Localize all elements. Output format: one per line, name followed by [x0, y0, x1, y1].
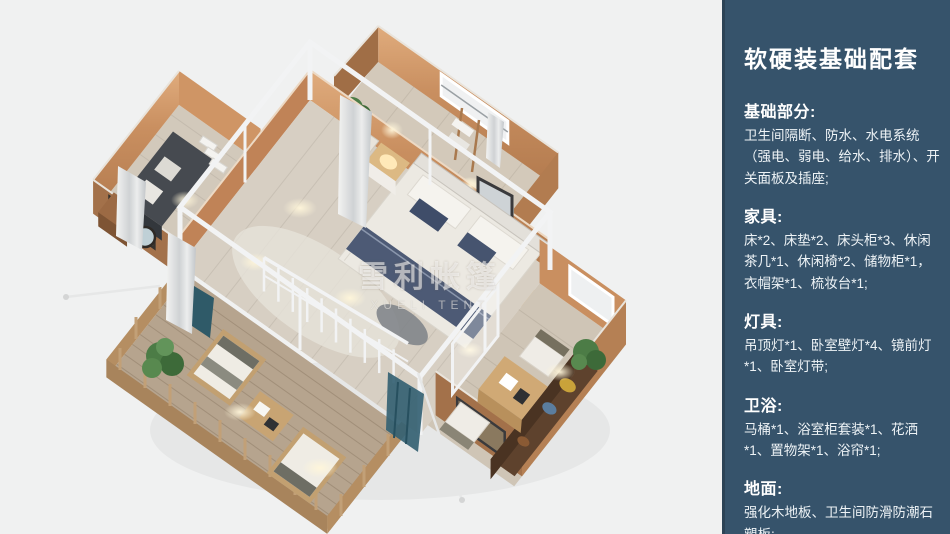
floorplan-render [0, 0, 722, 534]
floor-light-glow [224, 403, 256, 421]
section-basics: 基础部分: 卫生间隔断、防水、水电系统（强电、弱电、给水、排水）、开关面板及插座… [744, 98, 936, 189]
floor-light-glow [283, 198, 317, 218]
section-heading: 家具: [744, 203, 936, 227]
section-heading: 卫浴: [744, 392, 936, 416]
section-body: 强化木地板、卫生间防滑防潮石塑板; [744, 502, 940, 534]
floor-light-glow [334, 288, 366, 308]
section-furniture: 家具: 床*2、床垫*2、床头柜*3、休闲茶几*1、休闲椅*2、储物柜*1，衣帽… [744, 203, 936, 294]
section-body: 吊顶灯*1、卧室壁灯*4、镜前灯*1、卧室灯带; [744, 335, 940, 378]
curtain [166, 232, 196, 334]
section-bathroom: 卫浴: 马桶*1、浴室柜套装*1、花洒*1、置物架*1、浴帘*1; [744, 392, 936, 462]
floor-light-glow [302, 458, 338, 478]
section-body: 马桶*1、浴室柜套装*1、花洒*1、置物架*1、浴帘*1; [744, 419, 940, 462]
section-heading: 基础部分: [744, 98, 936, 122]
section-body: 卫生间隔断、防水、水电系统（强电、弱电、给水、排水）、开关面板及插座; [744, 125, 940, 189]
section-lighting: 灯具: 吊顶灯*1、卧室壁灯*4、镜前灯*1、卧室灯带; [744, 308, 936, 378]
slide: 雪利帐篷 XUELI TENT 软硬装基础配套 基础部分: 卫生间隔断、防水、水… [0, 0, 950, 534]
section-heading: 地面: [744, 475, 936, 499]
floorplan-svg [0, 0, 722, 534]
floor-light-glow [545, 363, 575, 381]
wall-lamp-glow [381, 121, 403, 139]
panel-title: 软硬装基础配套 [744, 40, 936, 74]
section-heading: 灯具: [744, 308, 936, 332]
section-body: 床*2、床垫*2、床头柜*3、休闲茶几*1、休闲椅*2、储物柜*1，衣帽架*1、… [744, 230, 940, 294]
section-flooring: 地面: 强化木地板、卫生间防滑防潮石塑板; [744, 475, 936, 534]
info-sidebar: 软硬装基础配套 基础部分: 卫生间隔断、防水、水电系统（强电、弱电、给水、排水）… [722, 0, 950, 534]
curtain [338, 95, 372, 228]
